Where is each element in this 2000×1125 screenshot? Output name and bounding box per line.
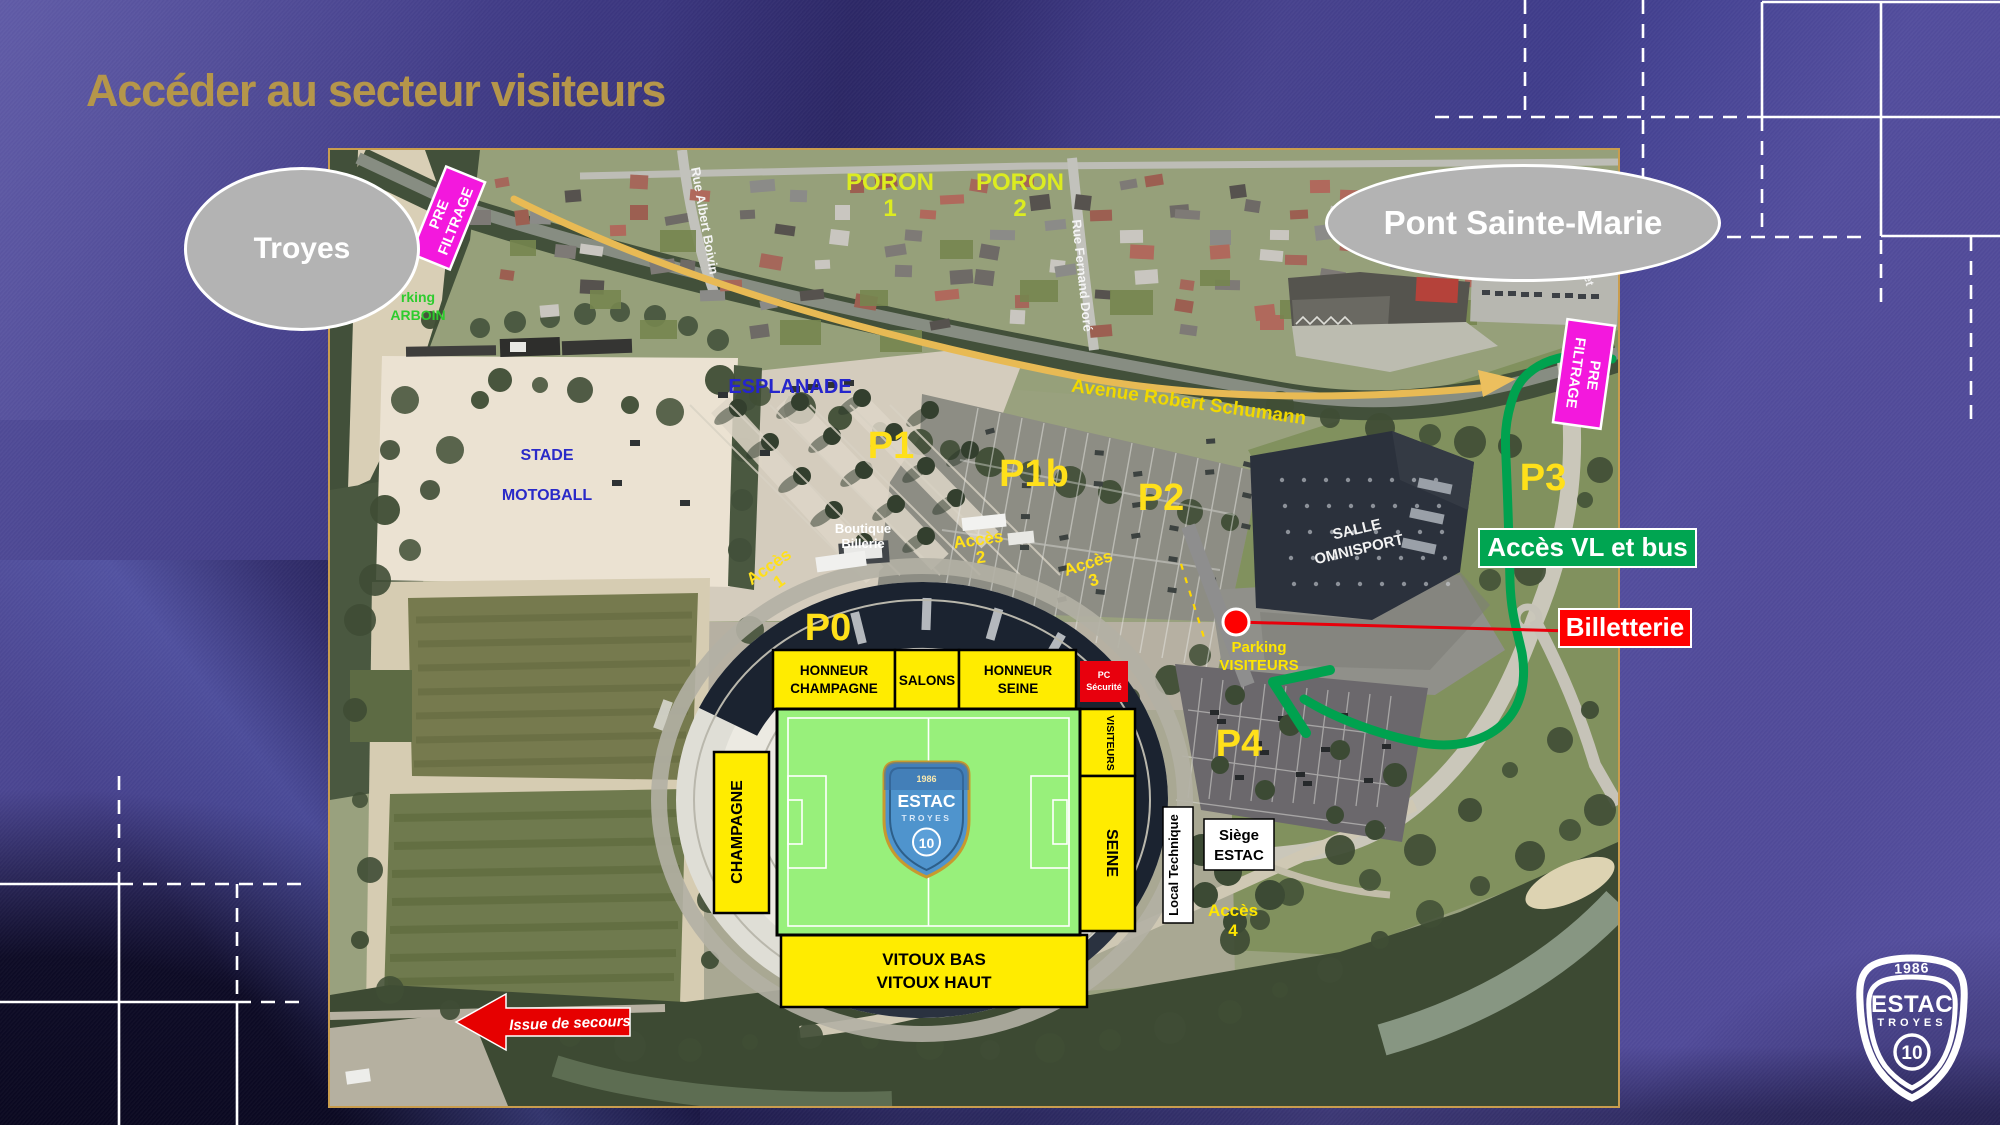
svg-text:Accès: Accès — [1208, 901, 1258, 920]
svg-text:rking: rking — [401, 289, 435, 305]
svg-text:1986: 1986 — [1894, 959, 1930, 976]
svg-text:Parking: Parking — [1231, 639, 1286, 656]
svg-text:ESTAC: ESTAC — [1214, 847, 1264, 864]
svg-text:VISITEURS: VISITEURS — [1104, 715, 1116, 770]
svg-text:TROYES: TROYES — [1877, 1017, 1946, 1029]
svg-text:10: 10 — [919, 835, 935, 851]
svg-text:CHAMPAGNE: CHAMPAGNE — [729, 780, 746, 884]
svg-text:PORON: PORON — [846, 169, 934, 196]
svg-text:TROYES: TROYES — [902, 813, 952, 823]
svg-text:P3: P3 — [1520, 457, 1566, 499]
svg-text:10: 10 — [1901, 1043, 1922, 1064]
svg-text:1: 1 — [883, 195, 896, 222]
svg-text:ESTAC: ESTAC — [897, 791, 955, 811]
svg-text:P4: P4 — [1216, 723, 1262, 765]
svg-text:SEINE: SEINE — [1103, 829, 1120, 877]
svg-text:MOTOBALL: MOTOBALL — [502, 487, 593, 504]
svg-text:HONNEUR: HONNEUR — [984, 663, 1053, 678]
svg-text:VISITEURS: VISITEURS — [1219, 657, 1298, 674]
svg-text:P0: P0 — [805, 607, 851, 649]
svg-text:ESTAC: ESTAC — [1871, 991, 1953, 1018]
svg-text:2: 2 — [1013, 195, 1026, 222]
svg-text:Sécurité: Sécurité — [1086, 682, 1122, 692]
svg-text:PORON: PORON — [976, 169, 1064, 196]
svg-text:SALONS: SALONS — [899, 673, 955, 688]
svg-text:PC: PC — [1098, 670, 1111, 680]
svg-text:Billerie: Billerie — [841, 536, 884, 551]
svg-text:Siège: Siège — [1219, 827, 1259, 844]
svg-text:P1: P1 — [868, 425, 914, 467]
svg-text:ARBOIN: ARBOIN — [390, 307, 445, 323]
svg-text:ESPLANADE: ESPLANADE — [728, 376, 851, 398]
svg-text:SEINE: SEINE — [998, 681, 1039, 696]
svg-text:Boutique: Boutique — [835, 521, 891, 536]
svg-text:HONNEUR: HONNEUR — [800, 663, 869, 678]
svg-text:Local Technique: Local Technique — [1166, 814, 1181, 916]
svg-text:4: 4 — [1228, 921, 1238, 940]
svg-text:VITOUX BAS: VITOUX BAS — [882, 950, 986, 969]
svg-text:1986: 1986 — [916, 774, 936, 784]
svg-text:VITOUX HAUT: VITOUX HAUT — [877, 973, 993, 992]
svg-text:P1b: P1b — [999, 453, 1069, 495]
svg-text:CHAMPAGNE: CHAMPAGNE — [790, 681, 878, 696]
svg-text:P2: P2 — [1138, 477, 1184, 519]
svg-text:STADE: STADE — [520, 447, 573, 464]
